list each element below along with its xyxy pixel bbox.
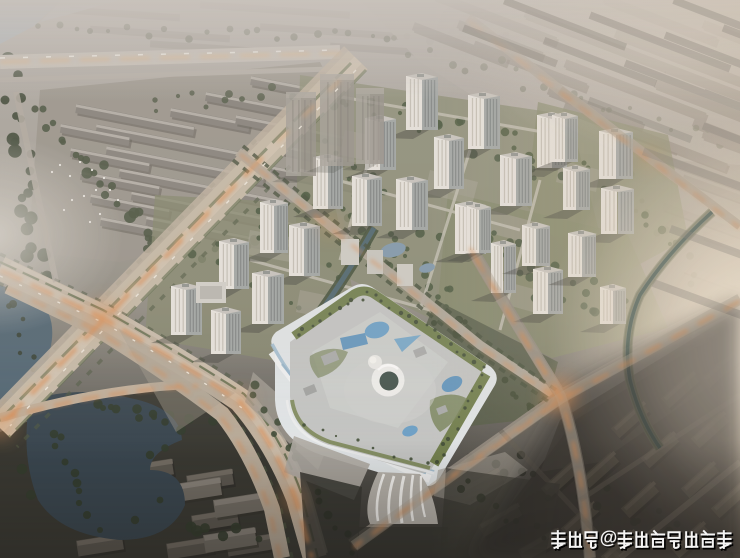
svg-text:@: @ — [600, 528, 618, 548]
